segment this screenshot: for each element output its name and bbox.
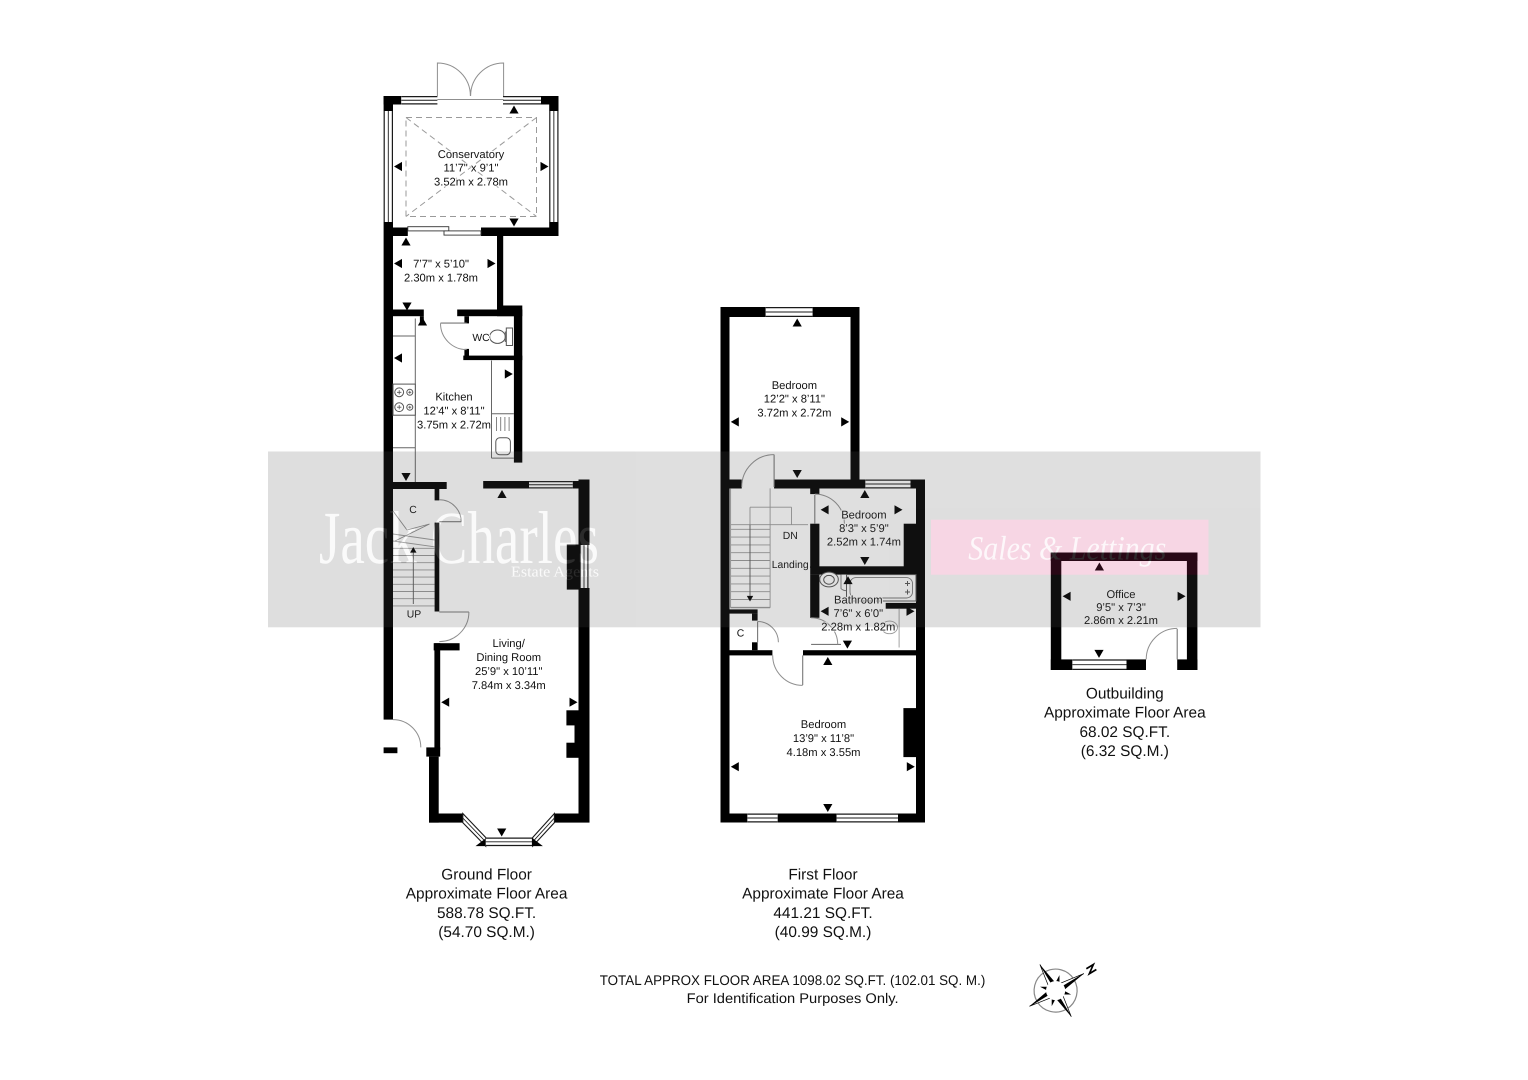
svg-text:WC: WC [472, 333, 490, 344]
svg-text:11’7" x 9’1": 11’7" x 9’1" [443, 163, 498, 175]
svg-text:(54.70 SQ.M.): (54.70 SQ.M.) [438, 924, 535, 941]
svg-text:2.30m x 1.78m: 2.30m x 1.78m [404, 273, 478, 285]
svg-text:Living/: Living/ [493, 638, 526, 650]
svg-text:7.84m x 3.34m: 7.84m x 3.34m [472, 680, 546, 692]
svg-text:TOTAL APPROX FLOOR AREA 1098.0: TOTAL APPROX FLOOR AREA 1098.02 SQ.FT. (… [600, 972, 986, 988]
svg-text:Sales & Lettings: Sales & Lettings [968, 531, 1166, 568]
svg-text:12’2" x 8’11": 12’2" x 8’11" [764, 394, 825, 406]
svg-text:C: C [737, 629, 745, 640]
svg-text:3.52m x 2.78m: 3.52m x 2.78m [434, 177, 508, 189]
svg-text:3.75m x 2.72m: 3.75m x 2.72m [417, 420, 491, 432]
svg-text:4.18m x 3.55m: 4.18m x 3.55m [787, 747, 861, 759]
svg-text:441.21 SQ.FT.: 441.21 SQ.FT. [773, 905, 872, 922]
svg-text:Ground Floor: Ground Floor [441, 867, 532, 884]
svg-text:12’4" x 8’11": 12’4" x 8’11" [423, 406, 484, 418]
svg-text:588.78 SQ.FT.: 588.78 SQ.FT. [437, 905, 536, 922]
svg-text:Bedroom: Bedroom [801, 719, 846, 731]
svg-text:Conservatory: Conservatory [438, 149, 505, 161]
svg-text:First Floor: First Floor [788, 867, 857, 884]
svg-text:Kitchen: Kitchen [435, 392, 472, 404]
svg-text:68.02 SQ.FT.: 68.02 SQ.FT. [1079, 724, 1170, 741]
svg-text:Outbuilding: Outbuilding [1086, 685, 1164, 702]
svg-text:Estate Agents: Estate Agents [511, 565, 599, 581]
svg-text:Approximate Floor Area: Approximate Floor Area [1044, 705, 1206, 722]
svg-text:25’9" x 10’11": 25’9" x 10’11" [475, 666, 542, 678]
svg-text:3.72m x 2.72m: 3.72m x 2.72m [757, 408, 831, 420]
svg-text:For Identification Purposes On: For Identification Purposes Only. [687, 990, 899, 1006]
svg-text:(40.99 SQ.M.): (40.99 SQ.M.) [775, 924, 872, 941]
svg-text:13’9" x 11’8": 13’9" x 11’8" [793, 733, 854, 745]
svg-text:Dining Room: Dining Room [476, 652, 541, 664]
svg-text:7’7" x 5’10": 7’7" x 5’10" [413, 258, 469, 270]
svg-text:Approximate Floor Area: Approximate Floor Area [742, 886, 904, 903]
svg-text:(6.32 SQ.M.): (6.32 SQ.M.) [1081, 743, 1169, 760]
svg-text:Bedroom: Bedroom [772, 380, 817, 392]
svg-text:Approximate Floor Area: Approximate Floor Area [406, 886, 568, 903]
